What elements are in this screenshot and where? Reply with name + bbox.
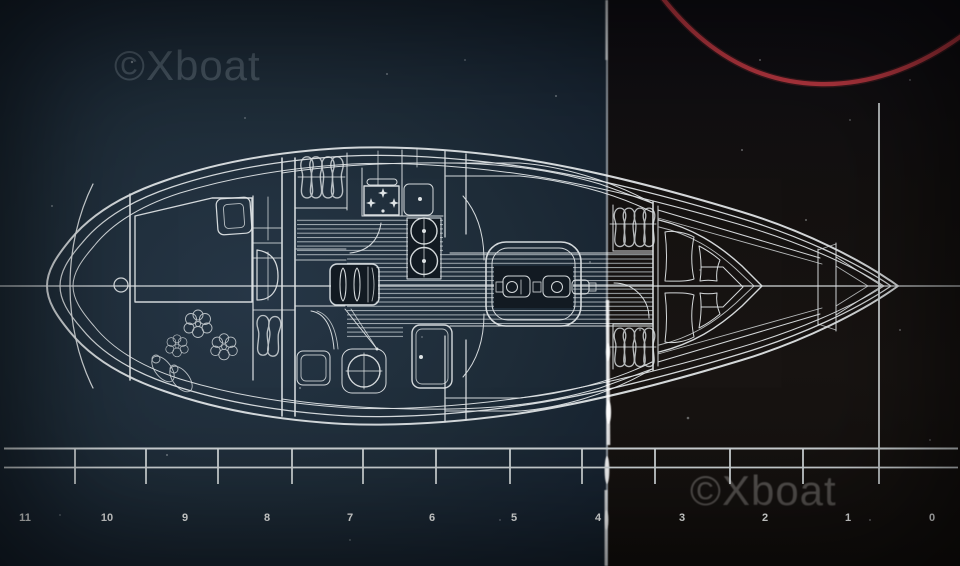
flower-doodles [166, 310, 238, 360]
coachroof-edge-top [282, 163, 652, 203]
ruler-label: 7 [347, 512, 353, 524]
ruler-label: 3 [679, 512, 685, 524]
ruler-ticks [75, 449, 803, 485]
berth-cushion [665, 231, 694, 281]
corner-locker-arc [311, 311, 334, 349]
berth-cushion [699, 293, 720, 328]
saloon-table [330, 264, 379, 305]
ruler-label: 5 [511, 512, 517, 524]
ruler-label: 0 [929, 512, 935, 524]
ruler-label: 1 [845, 512, 851, 524]
photo-canvas: ©Xboat ©Xboat 11 10 9 8 7 6 5 4 3 2 1 0 [0, 0, 960, 566]
stern-fitting-circle [114, 278, 128, 292]
stove-fiddle-rail [367, 179, 397, 185]
berth-infill [701, 267, 743, 307]
boat-interior-plan [0, 0, 960, 566]
aft-cabin-seat [257, 250, 278, 300]
cabin-door-panel [412, 325, 452, 388]
head-sink-vanity [297, 351, 330, 385]
berth-cushion [699, 246, 720, 281]
red-curve [658, 0, 960, 84]
ruler-label: 2 [762, 512, 768, 524]
ruler-label: 11 [19, 512, 31, 524]
ruler-label: 6 [429, 512, 435, 524]
boat-drawing [0, 147, 960, 424]
ruler-label: 4 [595, 512, 601, 524]
berth-cushion [665, 293, 694, 343]
hull-outline [0, 147, 960, 424]
ruler-label: 9 [182, 512, 188, 524]
pillow [216, 197, 252, 235]
aft-cabin [135, 196, 295, 396]
red-arc-line [658, 0, 960, 84]
stove-burners [366, 188, 399, 213]
ruler-label: 10 [101, 512, 113, 524]
ruler-label: 8 [264, 512, 270, 524]
coachroof-edge-bottom [282, 369, 652, 409]
